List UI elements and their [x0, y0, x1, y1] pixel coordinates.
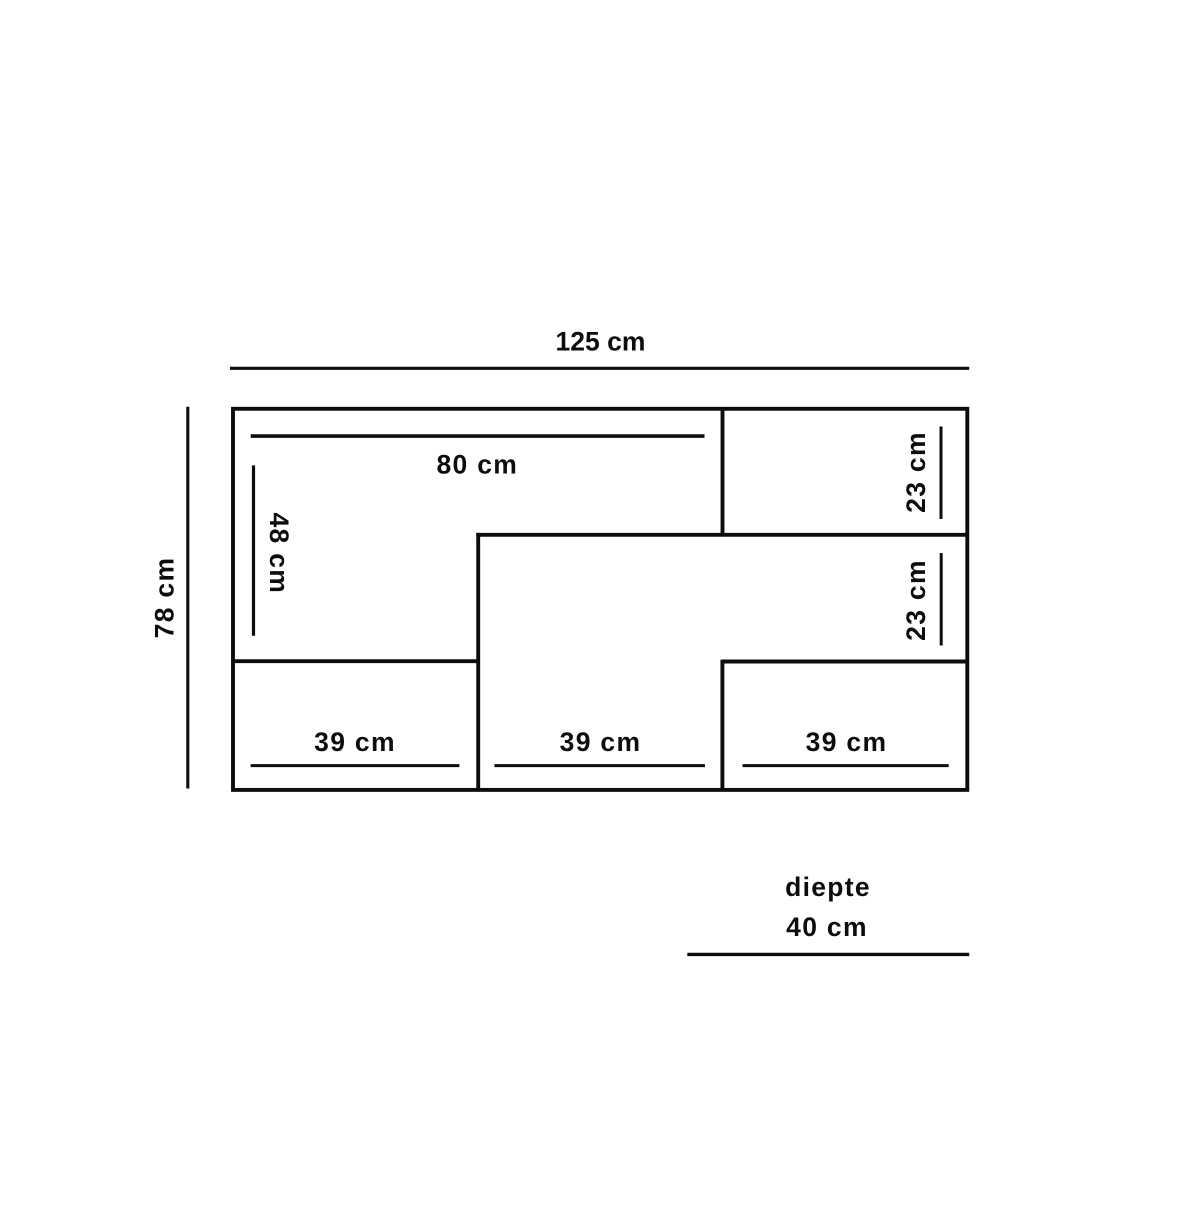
svg-text:39 cm: 39 cm — [314, 727, 396, 757]
svg-text:39 cm: 39 cm — [560, 727, 642, 757]
svg-text:40 cm: 40 cm — [786, 912, 868, 942]
svg-text:125 cm: 125 cm — [556, 326, 646, 356]
svg-text:48 cm: 48 cm — [264, 512, 294, 594]
svg-text:diepte: diepte — [785, 872, 871, 902]
svg-text:78 cm: 78 cm — [150, 557, 180, 639]
svg-text:23 cm: 23 cm — [901, 431, 931, 513]
svg-text:23 cm: 23 cm — [901, 559, 931, 641]
svg-text:39 cm: 39 cm — [806, 727, 888, 757]
svg-text:80 cm: 80 cm — [436, 450, 518, 480]
